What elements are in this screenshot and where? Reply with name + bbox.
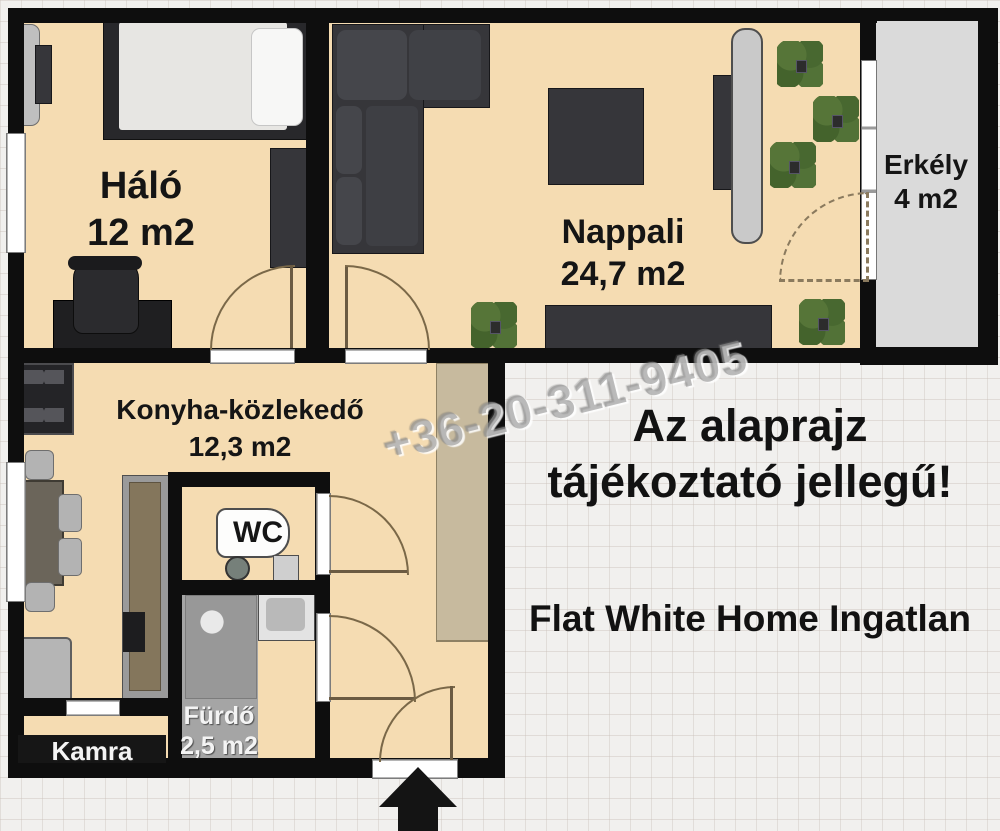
cooktop-burners — [24, 370, 64, 384]
sofa-cushion — [336, 177, 362, 245]
balcony-label: Erkély 4 m2 — [876, 148, 976, 216]
kitchen-window — [6, 462, 26, 602]
wall-wc-top — [168, 472, 330, 487]
livingroom-area: 24,7 m2 — [523, 253, 723, 295]
kitchen-counter-wood — [129, 482, 161, 691]
entrance-arrow-stem — [398, 805, 438, 831]
plant-icon — [777, 41, 823, 87]
bedroom-area: 12 m2 — [41, 210, 241, 257]
bathroom-name: Fürdő — [176, 701, 262, 731]
plant-icon — [813, 96, 859, 142]
sofa-cushion — [409, 30, 481, 100]
sofa-cushion — [337, 30, 407, 100]
washbasin-bowl — [266, 598, 305, 631]
living-door-threshold — [345, 349, 427, 364]
livingroom-label: Nappali 24,7 m2 — [523, 211, 723, 295]
wc-label: WC — [228, 516, 288, 550]
livingroom-name: Nappali — [523, 211, 723, 253]
sofa-cushion — [336, 106, 362, 174]
dining-chair — [58, 538, 82, 576]
wall-balcony-right — [978, 8, 998, 365]
plant-icon — [770, 142, 816, 188]
wall-wc-bottom — [168, 580, 330, 595]
bathroom-label: Fürdő 2,5 m2 — [176, 701, 262, 761]
wall-exterior-left — [8, 8, 24, 778]
dining-chair — [25, 450, 54, 480]
pantry-label: Kamra — [18, 736, 166, 767]
tv-stand — [713, 75, 733, 190]
bedroom-name: Háló — [41, 163, 241, 210]
balcony-area: 4 m2 — [876, 182, 976, 216]
balcony-name: Erkély — [876, 148, 976, 182]
tv-panel — [731, 28, 763, 244]
bathroom-area: 2,5 m2 — [176, 731, 262, 761]
entrance-door-leaf — [450, 686, 453, 760]
plant-icon — [799, 299, 845, 345]
plant-icon — [471, 302, 517, 348]
office-chair — [73, 260, 139, 334]
bedroom-door-threshold — [210, 349, 295, 364]
shower-head — [192, 600, 232, 644]
bedroom-label: Háló 12 m2 — [41, 163, 241, 257]
coffee-table — [548, 88, 644, 185]
entrance-arrow-icon — [379, 767, 457, 807]
wall-balcony-bottom — [860, 347, 998, 365]
floor-plan-image: Háló 12 m2 Nappali 24,7 m2 Erkély 4 m2 K… — [0, 0, 1000, 831]
kitchen-name: Konyha-közlekedő — [75, 391, 405, 428]
wc-sink — [273, 555, 299, 581]
nightstand — [35, 45, 52, 104]
agency-name: Flat White Home Ingatlan — [502, 598, 998, 640]
office-chair-back — [68, 256, 142, 270]
living-door-leaf — [345, 267, 348, 348]
dining-chair — [25, 582, 55, 612]
bath-door-leaf — [329, 697, 414, 700]
disclaimer-line2: tájékoztató jellegű! — [502, 454, 998, 510]
pantry-door-threshold — [66, 700, 120, 716]
bed-pillow — [251, 28, 303, 126]
wc-door-leaf — [329, 570, 407, 573]
sofa-seat — [366, 106, 418, 246]
wardrobe-bedroom — [270, 148, 308, 268]
kitchen-label: Konyha-közlekedő 12,3 m2 — [75, 391, 405, 465]
dining-chair — [58, 494, 82, 532]
fridge — [18, 637, 72, 705]
bedroom-window — [6, 133, 26, 253]
toilet-tank — [225, 556, 250, 581]
oven — [123, 612, 145, 652]
bedroom-door-leaf — [290, 265, 293, 348]
wall-bedroom-living — [306, 8, 329, 363]
kitchen-area: 12,3 m2 — [75, 428, 405, 465]
cooktop-burners — [24, 408, 64, 422]
wall-exterior-top — [8, 8, 877, 23]
